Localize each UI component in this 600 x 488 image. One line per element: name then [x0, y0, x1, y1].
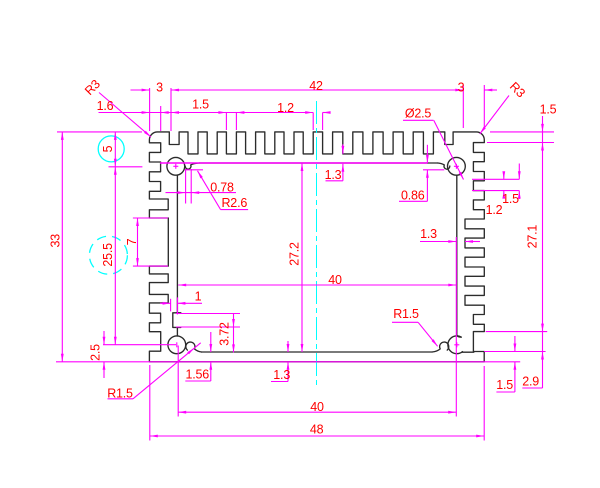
- svg-text:0.86: 0.86: [401, 189, 425, 203]
- svg-text:27.2: 27.2: [287, 242, 301, 266]
- svg-text:1.3: 1.3: [273, 368, 290, 382]
- svg-text:2.9: 2.9: [522, 374, 539, 388]
- svg-text:R1.5: R1.5: [107, 387, 133, 401]
- svg-text:0.78: 0.78: [210, 180, 234, 194]
- svg-text:1.3: 1.3: [420, 227, 437, 241]
- svg-text:42: 42: [309, 79, 323, 93]
- svg-text:1.5: 1.5: [502, 192, 519, 206]
- svg-text:Ø2.5: Ø2.5: [405, 107, 432, 121]
- svg-text:1.6: 1.6: [97, 99, 114, 113]
- svg-text:7: 7: [125, 238, 139, 245]
- svg-text:1.5: 1.5: [192, 98, 209, 112]
- svg-text:R1.5: R1.5: [393, 307, 419, 321]
- svg-text:40: 40: [328, 273, 342, 287]
- svg-text:1.5: 1.5: [540, 103, 557, 117]
- svg-text:33: 33: [49, 234, 63, 248]
- svg-text:25.5: 25.5: [101, 243, 115, 267]
- svg-text:40: 40: [310, 400, 324, 414]
- svg-text:1.56: 1.56: [186, 367, 210, 381]
- svg-text:1.2: 1.2: [277, 101, 294, 115]
- svg-text:48: 48: [310, 422, 324, 436]
- svg-text:27.1: 27.1: [526, 225, 540, 249]
- svg-text:5: 5: [101, 145, 115, 152]
- svg-text:3: 3: [458, 81, 465, 95]
- svg-text:3.72: 3.72: [218, 322, 232, 346]
- svg-text:1.3: 1.3: [325, 168, 342, 182]
- svg-text:1: 1: [195, 290, 202, 304]
- svg-text:1.5: 1.5: [496, 378, 513, 392]
- svg-text:1.2: 1.2: [486, 203, 503, 217]
- svg-text:3: 3: [156, 81, 163, 95]
- svg-text:R2.6: R2.6: [221, 196, 247, 210]
- svg-text:2.5: 2.5: [89, 344, 103, 361]
